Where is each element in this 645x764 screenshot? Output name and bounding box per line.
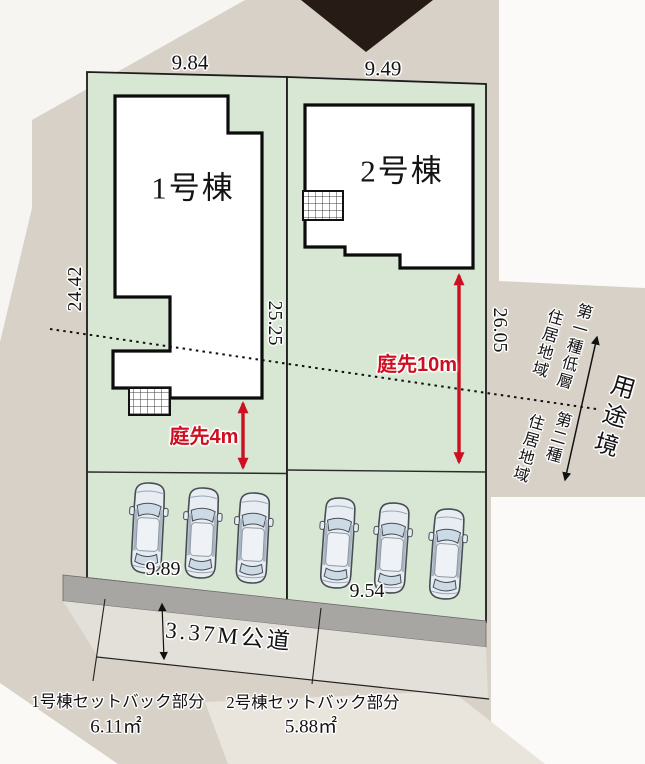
building2-label: 2号棟 bbox=[360, 156, 444, 187]
plot1-right-depth-dim: 25.25 bbox=[265, 301, 285, 346]
plot1-frontage-dim: 9.89 bbox=[146, 559, 181, 579]
building2-porch-hatch bbox=[303, 191, 343, 220]
setback1-label: 1号棟セットバック部分 bbox=[31, 694, 204, 711]
garden-4m-label: 庭先4m bbox=[170, 427, 239, 447]
building1-porch-hatch bbox=[129, 388, 170, 415]
plot2-right-depth-dim: 26.05 bbox=[490, 308, 510, 353]
plot2-frontage-dim: 9.54 bbox=[350, 581, 385, 601]
setback2-area: 5.88㎡ bbox=[285, 718, 337, 737]
site-plan-drawing: 9.84 9.49 24.42 25.25 26.05 1号棟 2号棟 庭先4m… bbox=[0, 0, 645, 764]
building1-footprint bbox=[113, 96, 262, 398]
plot1-left-depth-dim: 24.42 bbox=[65, 267, 85, 312]
garden-10m-label: 庭先10m bbox=[377, 355, 457, 375]
site-plan-graphics bbox=[0, 0, 645, 764]
north-pointer-triangle-icon bbox=[301, 0, 433, 52]
plot1-top-width-dim: 9.84 bbox=[172, 53, 209, 74]
setback2-label: 2号棟セットバック部分 bbox=[226, 695, 399, 712]
building1-label: 1号棟 bbox=[151, 173, 235, 204]
plot2-top-width-dim: 9.49 bbox=[365, 59, 402, 80]
setback1-area: 6.11㎡ bbox=[90, 718, 142, 737]
